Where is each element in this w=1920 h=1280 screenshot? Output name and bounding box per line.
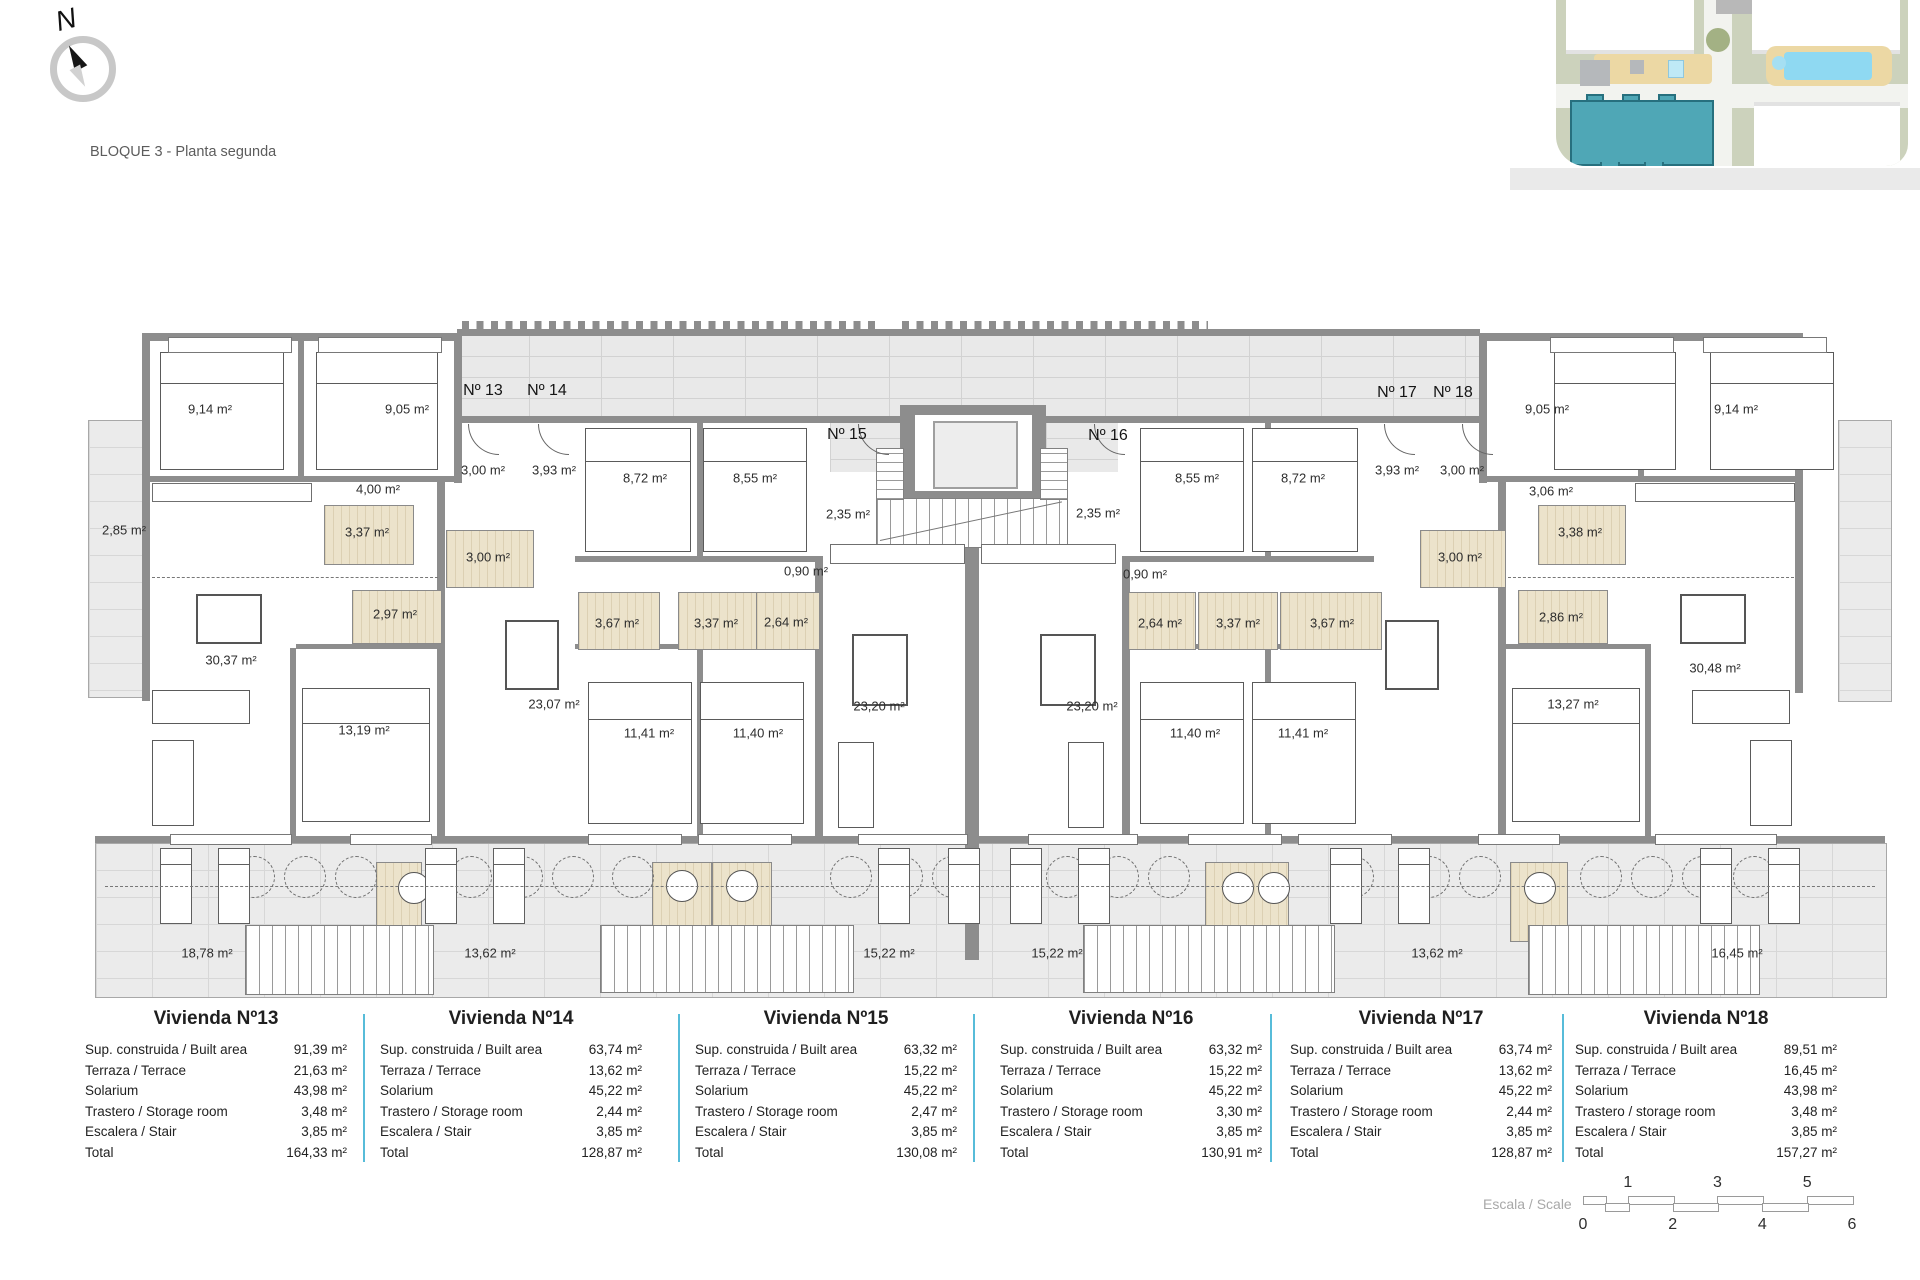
- row-value: 130,08 m²: [896, 1143, 957, 1164]
- unit-table-row: Terraza / Terrace13,62 m²: [380, 1061, 642, 1082]
- wall: [1503, 644, 1651, 649]
- room-area-label: 9,05 m²: [385, 402, 429, 417]
- minimap-deck-kiosk: [1630, 60, 1644, 74]
- row-value: 2,44 m²: [1506, 1102, 1552, 1123]
- row-label: Terraza / Terrace: [1575, 1061, 1676, 1082]
- row-label: Escalera / Stair: [85, 1122, 177, 1143]
- room-area-label: 18,78 m²: [181, 946, 232, 961]
- sun-terrace: [88, 420, 147, 698]
- room-area-label: 9,05 m²: [1525, 402, 1569, 417]
- table-divider: [363, 1014, 365, 1162]
- unit-table-row: Escalera / Stair3,85 m²: [85, 1122, 347, 1143]
- table-divider: [973, 1014, 975, 1162]
- room-area-label: 3,00 m²: [466, 550, 510, 565]
- bed: [1252, 428, 1358, 552]
- sofa: [838, 742, 874, 828]
- row-label: Solarium: [380, 1081, 433, 1102]
- unit-table-title: Vivienda Nº15: [695, 1008, 957, 1030]
- scale-bar-label: Escala / Scale: [1483, 1196, 1572, 1212]
- unit-table-row: Solarium45,22 m²: [695, 1081, 957, 1102]
- room-area-label: 13,27 m²: [1547, 697, 1598, 712]
- row-value: 45,22 m²: [904, 1081, 957, 1102]
- bed: [1252, 682, 1356, 824]
- row-label: Total: [1000, 1143, 1029, 1164]
- unit-table-row: Escalera / Stair3,85 m²: [1290, 1122, 1552, 1143]
- room-area-label: 0,90 m²: [1123, 567, 1167, 582]
- window: [1028, 834, 1138, 845]
- room-area-label: 30,37 m²: [205, 653, 256, 668]
- bed: [1554, 352, 1676, 470]
- row-value: 157,27 m²: [1776, 1143, 1837, 1164]
- terrace-table: [335, 856, 377, 898]
- row-value: 128,87 m²: [581, 1143, 642, 1164]
- unit-number-label: Nº 14: [527, 382, 567, 400]
- row-label: Total: [85, 1143, 114, 1164]
- unit-table-row: Solarium45,22 m²: [1290, 1081, 1552, 1102]
- unit-table-row: Trastero / Storage room3,30 m²: [1000, 1102, 1262, 1123]
- row-value: 3,48 m²: [1791, 1102, 1837, 1123]
- dashed-line: [152, 577, 438, 578]
- dining-table: [196, 594, 262, 644]
- scale-segment: [1583, 1196, 1607, 1205]
- scale-segment: [1762, 1203, 1809, 1212]
- parapet-crenellation: [902, 321, 1208, 329]
- unit-table-row: Trastero / storage room3,48 m²: [1575, 1102, 1837, 1123]
- room-area-label: 11,40 m²: [733, 726, 783, 741]
- minimap-utility-pad: [1716, 0, 1752, 14]
- terrace-table: [830, 856, 872, 898]
- room-area-label: 15,22 m²: [863, 946, 914, 961]
- room-area-label: 2,35 m²: [1076, 506, 1120, 521]
- row-value: 63,32 m²: [1209, 1040, 1262, 1061]
- dining-table: [1680, 594, 1746, 644]
- row-value: 130,91 m²: [1201, 1143, 1262, 1164]
- unit-table-title: Vivienda Nº16: [1000, 1008, 1262, 1030]
- room-area-label: 13,62 m²: [1411, 946, 1462, 961]
- window: [1478, 834, 1560, 845]
- dining-table: [505, 620, 559, 690]
- row-label: Sup. construida / Built area: [1290, 1040, 1452, 1061]
- scale-segment: [1628, 1196, 1675, 1205]
- row-label: Total: [1575, 1143, 1604, 1164]
- scale-segment: [1673, 1203, 1720, 1212]
- room-area-label: 3,00 m²: [1440, 463, 1484, 478]
- row-value: 21,63 m²: [294, 1061, 347, 1082]
- unit-table-row: Sup. construida / Built area89,51 m²: [1575, 1040, 1837, 1061]
- scale-tick: 3: [1713, 1174, 1722, 1192]
- room-area-label: 23,20 m²: [853, 699, 904, 714]
- room-area-label: 11,40 m²: [1170, 726, 1220, 741]
- scale-tick: 0: [1579, 1216, 1588, 1234]
- unit-table: Vivienda Nº18Sup. construida / Built are…: [1575, 1008, 1837, 1163]
- terrace-table: [1580, 856, 1622, 898]
- unit-table-row: Sup. construida / Built area63,74 m²: [1290, 1040, 1552, 1061]
- stair-flight: [876, 448, 904, 500]
- unit-table: Vivienda Nº15Sup. construida / Built are…: [695, 1008, 957, 1163]
- table-divider: [678, 1014, 680, 1162]
- kitchen-counter: [152, 483, 312, 502]
- kitchen-counter: [830, 544, 965, 564]
- row-label: Trastero / Storage room: [1290, 1102, 1433, 1123]
- terrace-table: [1459, 856, 1501, 898]
- scale-tick: 2: [1668, 1216, 1677, 1234]
- unit-table-title: Vivienda Nº18: [1575, 1008, 1837, 1030]
- row-label: Total: [695, 1143, 724, 1164]
- row-value: 63,74 m²: [589, 1040, 642, 1061]
- minimap-pool: [1784, 52, 1872, 80]
- row-value: 45,22 m²: [1209, 1081, 1262, 1102]
- dashed-line: [105, 886, 1875, 887]
- room-area-label: 4,00 m²: [356, 482, 400, 497]
- window: [1703, 337, 1827, 353]
- row-value: 91,39 m²: [294, 1040, 347, 1061]
- unit-table-row: Sup. construida / Built area63,32 m²: [1000, 1040, 1262, 1061]
- unit-table-row: Terraza / Terrace21,63 m²: [85, 1061, 347, 1082]
- stair-flight: [245, 925, 434, 995]
- bed: [700, 682, 804, 824]
- row-label: Trastero / Storage room: [1000, 1102, 1143, 1123]
- row-label: Trastero / storage room: [1575, 1102, 1716, 1123]
- unit-table: Vivienda Nº17Sup. construida / Built are…: [1290, 1008, 1552, 1163]
- bed: [585, 428, 691, 552]
- wall: [150, 476, 456, 482]
- row-value: 3,85 m²: [1506, 1122, 1552, 1143]
- window: [858, 834, 968, 845]
- sofa: [1750, 740, 1792, 826]
- row-label: Solarium: [85, 1081, 138, 1102]
- unit-number-label: Nº 13: [463, 382, 503, 400]
- window: [318, 337, 442, 353]
- unit-table-row: Sup. construida / Built area91,39 m²: [85, 1040, 347, 1061]
- scale-segment: [1717, 1196, 1764, 1205]
- window: [1298, 834, 1392, 845]
- room-area-label: 3,37 m²: [345, 525, 389, 540]
- wall: [1479, 333, 1487, 483]
- room-area-label: 13,19 m²: [338, 723, 389, 738]
- row-label: Terraza / Terrace: [85, 1061, 186, 1082]
- wall: [1126, 556, 1374, 562]
- minimap-splash-pool: [1668, 60, 1684, 78]
- unit-table-row: Terraza / Terrace16,45 m²: [1575, 1061, 1837, 1082]
- row-label: Sup. construida / Built area: [695, 1040, 857, 1061]
- unit-table: Vivienda Nº13Sup. construida / Built are…: [85, 1008, 347, 1163]
- row-value: 3,85 m²: [1791, 1122, 1837, 1143]
- sun-terrace: [1838, 420, 1892, 702]
- dining-table: [1040, 634, 1096, 706]
- unit-table-row: Total157,27 m²: [1575, 1143, 1837, 1164]
- minimap-tree: [1706, 28, 1730, 52]
- room-area-label: 23,07 m²: [528, 697, 579, 712]
- scale-tick: 6: [1848, 1216, 1857, 1234]
- unit-table-row: Escalera / Stair3,85 m²: [695, 1122, 957, 1143]
- unit-table-row: Solarium45,22 m²: [380, 1081, 642, 1102]
- room-area-label: 3,67 m²: [1310, 616, 1354, 631]
- stair-flight: [600, 925, 854, 993]
- unit-table: Vivienda Nº16Sup. construida / Built are…: [1000, 1008, 1262, 1163]
- room-area-label: 3,37 m²: [694, 616, 738, 631]
- dashed-line: [1508, 577, 1794, 578]
- unit-table-row: Total128,87 m²: [380, 1143, 642, 1164]
- row-label: Trastero / Storage room: [695, 1102, 838, 1123]
- wall: [298, 341, 304, 481]
- terrace-table: [284, 856, 326, 898]
- row-label: Solarium: [1000, 1081, 1053, 1102]
- unit-table-row: Terraza / Terrace13,62 m²: [1290, 1061, 1552, 1082]
- window: [1550, 337, 1674, 353]
- minimap-highlight-bump: [1644, 162, 1664, 166]
- unit-table-row: Escalera / Stair3,85 m²: [1575, 1122, 1837, 1143]
- sofa: [152, 690, 250, 724]
- row-label: Trastero / Storage room: [380, 1102, 523, 1123]
- window: [698, 834, 792, 845]
- scale-tick: 1: [1623, 1174, 1632, 1192]
- stair-flight: [1083, 925, 1335, 993]
- site-minimap: [1510, 0, 1920, 190]
- row-value: 3,48 m²: [301, 1102, 347, 1123]
- unit-table-row: Sup. construida / Built area63,32 m²: [695, 1040, 957, 1061]
- terrace-service-circle: [1258, 872, 1290, 904]
- room-area-label: 3,67 m²: [595, 616, 639, 631]
- minimap-courtyard: [1556, 0, 1908, 166]
- dining-table: [1385, 620, 1439, 690]
- row-value: 3,85 m²: [301, 1122, 347, 1143]
- room-area-label: 8,55 m²: [1175, 471, 1219, 486]
- row-label: Escalera / Stair: [1000, 1122, 1092, 1143]
- row-value: 16,45 m²: [1784, 1061, 1837, 1082]
- parapet-crenellation: [462, 321, 876, 329]
- window: [1188, 834, 1282, 845]
- row-label: Escalera / Stair: [1575, 1122, 1667, 1143]
- unit-table-row: Total128,87 m²: [1290, 1143, 1552, 1164]
- room-area-label: 11,41 m²: [1278, 726, 1328, 741]
- scale-segment: [1605, 1203, 1629, 1212]
- unit-table-title: Vivienda Nº17: [1290, 1008, 1552, 1030]
- scale-tick: 5: [1803, 1174, 1812, 1192]
- row-label: Terraza / Terrace: [1000, 1061, 1101, 1082]
- room-area-label: 16,45 m²: [1711, 946, 1762, 961]
- minimap-pad-left: [1580, 60, 1610, 86]
- unit-table-row: Terraza / Terrace15,22 m²: [695, 1061, 957, 1082]
- row-label: Solarium: [695, 1081, 748, 1102]
- scale-segment: [1807, 1196, 1854, 1205]
- unit-table-row: Sup. construida / Built area63,74 m²: [380, 1040, 642, 1061]
- row-value: 63,74 m²: [1499, 1040, 1552, 1061]
- row-label: Solarium: [1290, 1081, 1343, 1102]
- wall: [1645, 648, 1651, 838]
- kitchen-counter: [1635, 483, 1795, 502]
- row-value: 43,98 m²: [294, 1081, 347, 1102]
- row-value: 45,22 m²: [1499, 1081, 1552, 1102]
- terrace-table: [552, 856, 594, 898]
- terrace-service-circle: [1524, 872, 1556, 904]
- room-area-label: 0,90 m²: [784, 564, 828, 579]
- unit-table-row: Escalera / Stair3,85 m²: [1000, 1122, 1262, 1143]
- row-label: Trastero / Storage room: [85, 1102, 228, 1123]
- terrace-table: [1148, 856, 1190, 898]
- terrace-table: [612, 856, 654, 898]
- window: [168, 337, 292, 353]
- table-divider: [1270, 1014, 1272, 1162]
- room-area-label: 8,72 m²: [1281, 471, 1325, 486]
- row-label: Sup. construida / Built area: [1000, 1040, 1162, 1061]
- wall: [1483, 476, 1795, 482]
- sofa: [1692, 690, 1790, 724]
- room-area-label: 8,72 m²: [623, 471, 667, 486]
- page-title: BLOQUE 3 - Planta segunda: [90, 144, 276, 160]
- unit-table-row: Total130,91 m²: [1000, 1143, 1262, 1164]
- wall: [142, 333, 150, 701]
- row-value: 3,85 m²: [596, 1122, 642, 1143]
- sofa: [1068, 742, 1104, 828]
- north-label: N: [52, 2, 80, 38]
- room-area-label: 30,48 m²: [1689, 661, 1740, 676]
- row-value: 3,85 m²: [911, 1122, 957, 1143]
- row-value: 89,51 m²: [1784, 1040, 1837, 1061]
- unit-table-title: Vivienda Nº13: [85, 1008, 347, 1030]
- row-label: Sup. construida / Built area: [85, 1040, 247, 1061]
- unit-table-row: Solarium43,98 m²: [85, 1081, 347, 1102]
- room-area-label: 3,00 m²: [1438, 550, 1482, 565]
- room-area-label: 3,06 m²: [1529, 484, 1573, 499]
- kitchen-counter: [981, 544, 1116, 564]
- room-area-label: 3,37 m²: [1216, 616, 1260, 631]
- row-label: Solarium: [1575, 1081, 1628, 1102]
- room-area-label: 2,85 m²: [102, 523, 146, 538]
- minimap-pool-circle: [1772, 56, 1786, 70]
- minimap-building-top-left: [1566, 0, 1694, 54]
- row-value: 3,85 m²: [1216, 1122, 1262, 1143]
- wall: [290, 648, 296, 838]
- unit-number-label: Nº 16: [1088, 427, 1128, 445]
- row-value: 164,33 m²: [286, 1143, 347, 1164]
- wall: [457, 329, 1480, 336]
- row-value: 2,47 m²: [911, 1102, 957, 1123]
- unit-number-label: Nº 17: [1377, 384, 1417, 402]
- row-value: 15,22 m²: [904, 1061, 957, 1082]
- room-area-label: 3,93 m²: [532, 463, 576, 478]
- bed: [703, 428, 807, 552]
- elevator-cab: [933, 421, 1018, 489]
- room-area-label: 3,93 m²: [1375, 463, 1419, 478]
- minimap-building-bottom-right: [1754, 102, 1900, 166]
- room-area-label: 8,55 m²: [733, 471, 777, 486]
- unit-table: Vivienda Nº14Sup. construida / Built are…: [380, 1008, 642, 1163]
- room-area-label: 9,14 m²: [188, 402, 232, 417]
- wall: [437, 478, 445, 840]
- row-value: 43,98 m²: [1784, 1081, 1837, 1102]
- room-area-label: 3,00 m²: [461, 463, 505, 478]
- room-area-label: 2,86 m²: [1539, 610, 1583, 625]
- unit-table-row: Total164,33 m²: [85, 1143, 347, 1164]
- bed: [1140, 682, 1244, 824]
- bed: [1140, 428, 1244, 552]
- page: { "header": { "block_title": "BLOQUE 3 -…: [0, 0, 1920, 1280]
- row-value: 128,87 m²: [1491, 1143, 1552, 1164]
- room-area-label: 2,97 m²: [373, 607, 417, 622]
- row-value: 13,62 m²: [1499, 1061, 1552, 1082]
- unit-number-label: Nº 18: [1433, 384, 1473, 402]
- unit-table-title: Vivienda Nº14: [380, 1008, 642, 1030]
- row-value: 45,22 m²: [589, 1081, 642, 1102]
- room-area-label: 13,62 m²: [464, 946, 515, 961]
- unit-table-row: Terraza / Terrace15,22 m²: [1000, 1061, 1262, 1082]
- unit-table-row: Solarium45,22 m²: [1000, 1081, 1262, 1102]
- row-label: Terraza / Terrace: [380, 1061, 481, 1082]
- room-area-label: 23,20 m²: [1066, 699, 1117, 714]
- bed: [302, 688, 430, 822]
- minimap-ground-strip: [1510, 168, 1920, 190]
- terrace-service-circle: [1222, 872, 1254, 904]
- row-value: 63,32 m²: [904, 1040, 957, 1061]
- room-area-label: 2,64 m²: [1138, 616, 1182, 631]
- bed: [588, 682, 692, 824]
- row-label: Total: [380, 1143, 409, 1164]
- minimap-highlight-bump: [1600, 162, 1620, 166]
- row-label: Escalera / Stair: [695, 1122, 787, 1143]
- row-value: 15,22 m²: [1209, 1061, 1262, 1082]
- minimap-highlighted-block: [1570, 100, 1714, 166]
- dining-table: [852, 634, 908, 706]
- room-area-label: 2,64 m²: [764, 615, 808, 630]
- sofa: [152, 740, 194, 826]
- window: [588, 834, 682, 845]
- stair-flight: [1040, 448, 1068, 500]
- scale-tick: 4: [1758, 1216, 1767, 1234]
- unit-table-row: Trastero / Storage room3,48 m²: [85, 1102, 347, 1123]
- window: [350, 834, 432, 845]
- minimap-deck-left: [1594, 54, 1712, 84]
- row-label: Total: [1290, 1143, 1319, 1164]
- row-label: Terraza / Terrace: [1290, 1061, 1391, 1082]
- window: [170, 834, 292, 845]
- unit-table-row: Total130,08 m²: [695, 1143, 957, 1164]
- unit-table-row: Escalera / Stair3,85 m²: [380, 1122, 642, 1143]
- terrace-table: [1631, 856, 1673, 898]
- row-label: Escalera / Stair: [1290, 1122, 1382, 1143]
- row-label: Escalera / Stair: [380, 1122, 472, 1143]
- wall: [296, 644, 442, 649]
- unit-number-label: Nº 15: [827, 426, 867, 444]
- room-area-label: 11,41 m²: [624, 726, 674, 741]
- window: [1655, 834, 1777, 845]
- table-divider: [1562, 1014, 1564, 1162]
- row-value: 13,62 m²: [589, 1061, 642, 1082]
- room-area-label: 9,14 m²: [1714, 402, 1758, 417]
- row-label: Sup. construida / Built area: [1575, 1040, 1737, 1061]
- room-area-label: 2,35 m²: [826, 507, 870, 522]
- row-label: Sup. construida / Built area: [380, 1040, 542, 1061]
- unit-table-row: Trastero / Storage room2,47 m²: [695, 1102, 957, 1123]
- unit-table-row: Trastero / Storage room2,44 m²: [1290, 1102, 1552, 1123]
- unit-table-row: Solarium43,98 m²: [1575, 1081, 1837, 1102]
- row-label: Terraza / Terrace: [695, 1061, 796, 1082]
- wall: [454, 333, 462, 483]
- row-value: 3,30 m²: [1216, 1102, 1262, 1123]
- room-area-label: 15,22 m²: [1031, 946, 1082, 961]
- unit-table-row: Trastero / Storage room2,44 m²: [380, 1102, 642, 1123]
- room-area-label: 3,38 m²: [1558, 525, 1602, 540]
- row-value: 2,44 m²: [596, 1102, 642, 1123]
